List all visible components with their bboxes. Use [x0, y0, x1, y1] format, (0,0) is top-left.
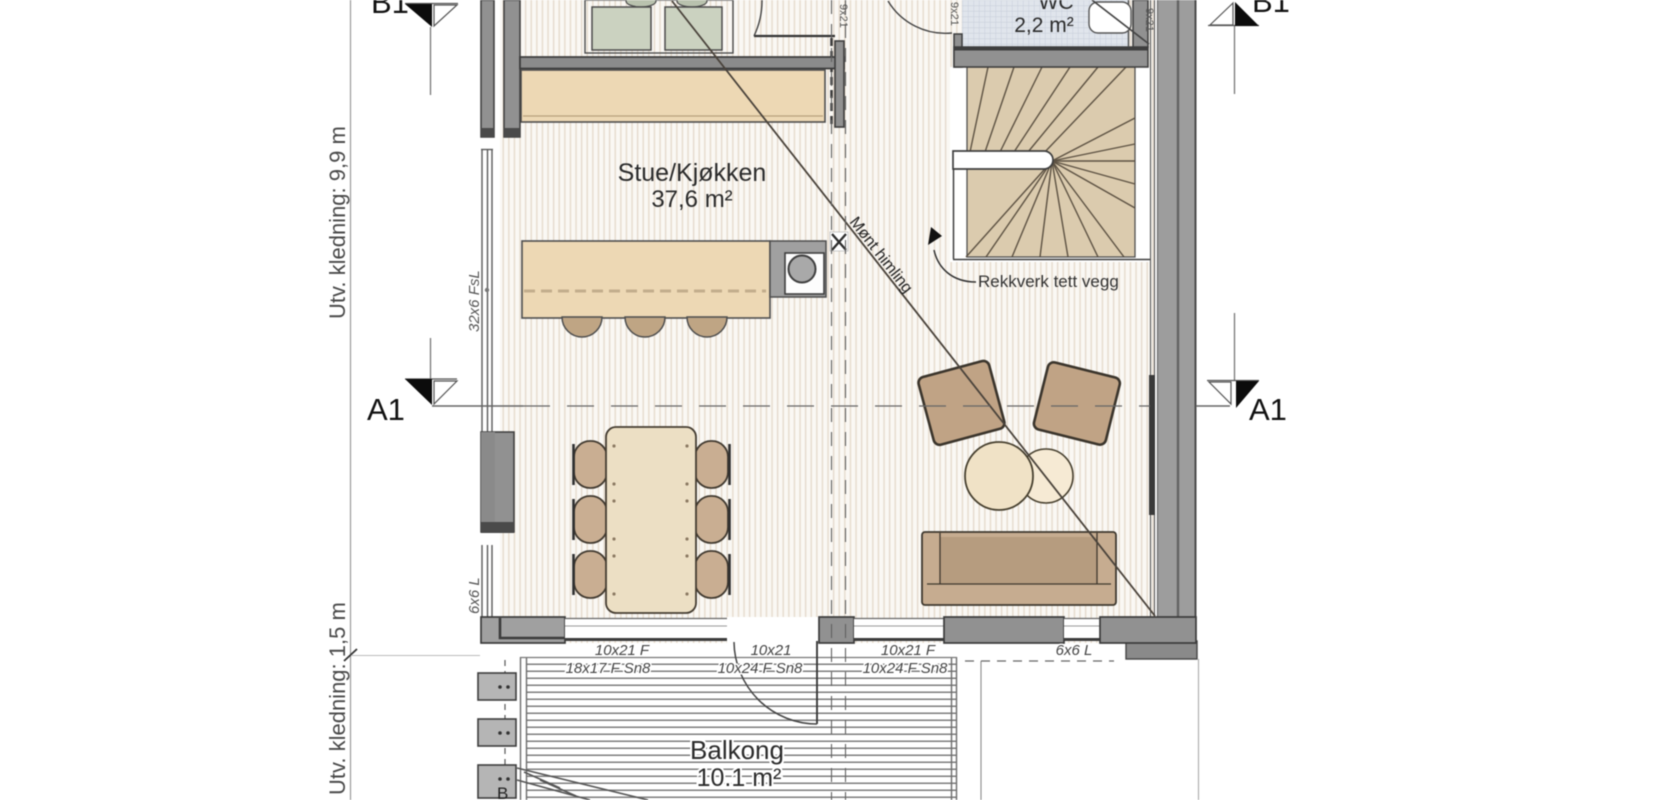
svg-text:10.1 m²: 10.1 m² [697, 764, 782, 792]
svg-text:9x21: 9x21 [948, 2, 960, 26]
svg-text:10x21 F: 10x21 F [595, 642, 650, 659]
svg-text:10x21: 10x21 [751, 642, 792, 659]
svg-text:WC: WC [1039, 0, 1074, 14]
svg-text:2,2 m²: 2,2 m² [1014, 14, 1074, 37]
svg-text:Rekkverk tett vegg: Rekkverk tett vegg [978, 272, 1119, 291]
svg-text:9x21: 9x21 [1143, 8, 1155, 32]
svg-text:A1: A1 [1249, 392, 1287, 427]
svg-text:37,6 m²: 37,6 m² [651, 186, 732, 213]
svg-text:10x24 F Sn8: 10x24 F Sn8 [863, 660, 948, 677]
svg-text:10x24 F Sn8: 10x24 F Sn8 [718, 660, 803, 677]
svg-text:32x6 FsL: 32x6 FsL [466, 270, 483, 332]
svg-text:6x6 L: 6x6 L [466, 577, 483, 614]
svg-text:B1: B1 [1252, 0, 1290, 19]
svg-text:Balkong: Balkong [690, 735, 784, 765]
svg-text:A1: A1 [367, 392, 405, 427]
svg-text:B1: B1 [371, 0, 409, 20]
svg-text:9x21: 9x21 [837, 4, 849, 28]
svg-text:Utv. kledning: 1,5 m: Utv. kledning: 1,5 m [325, 602, 350, 795]
svg-text:Stue/Kjøkken: Stue/Kjøkken [618, 159, 767, 187]
svg-text:6x6 L: 6x6 L [1056, 642, 1093, 659]
svg-text:10x21 F: 10x21 F [881, 642, 936, 659]
svg-text:B: B [497, 784, 508, 800]
svg-text:18x17 F Sn8: 18x17 F Sn8 [566, 660, 651, 677]
svg-text:Utv. kledning: 9,9 m: Utv. kledning: 9,9 m [325, 126, 350, 319]
